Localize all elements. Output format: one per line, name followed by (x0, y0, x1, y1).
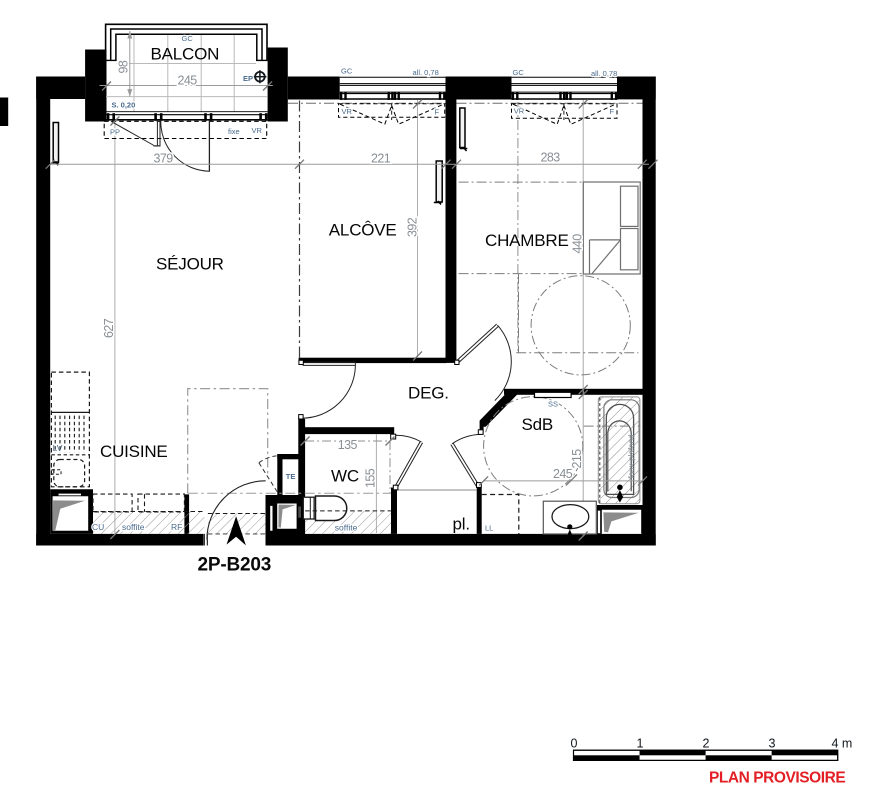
svg-text:soffite: soffite (335, 523, 358, 533)
svg-text:VR: VR (342, 107, 353, 116)
svg-text:1: 1 (637, 737, 644, 751)
svg-text:PLAN PROVISOIRE: PLAN PROVISOIRE (709, 769, 845, 786)
svg-text:SdB: SdB (522, 415, 554, 434)
svg-text:GC: GC (341, 67, 353, 76)
svg-text:SS: SS (548, 400, 558, 409)
svg-text:379: 379 (154, 152, 174, 166)
svg-text:TE: TE (286, 472, 296, 481)
svg-text:WC: WC (331, 467, 359, 486)
svg-text:all. 0,78: all. 0,78 (413, 68, 439, 77)
svg-text:221: 221 (371, 152, 391, 166)
svg-text:VR: VR (252, 126, 263, 135)
svg-text:155: 155 (364, 468, 378, 488)
svg-text:440: 440 (571, 234, 585, 254)
svg-text:2P-B203: 2P-B203 (198, 555, 272, 576)
svg-text:EP: EP (243, 74, 253, 83)
svg-text:215: 215 (570, 449, 584, 469)
svg-text:283: 283 (541, 151, 561, 165)
svg-text:392: 392 (406, 217, 420, 237)
svg-text:soffite: soffite (122, 522, 145, 532)
svg-text:4 m: 4 m (832, 737, 853, 751)
svg-text:CHAMBRE: CHAMBRE (485, 231, 569, 250)
svg-text:PP: PP (110, 128, 120, 137)
svg-text:RF: RF (171, 522, 182, 532)
svg-text:LV: LV (53, 443, 63, 453)
svg-text:SÉJOUR: SÉJOUR (156, 255, 224, 274)
svg-text:F: F (610, 107, 615, 116)
svg-text:DEG.: DEG. (408, 384, 449, 403)
svg-text:F: F (435, 107, 440, 116)
svg-text:pl.: pl. (453, 515, 470, 534)
svg-text:0: 0 (571, 737, 578, 751)
svg-text:BALCON: BALCON (151, 45, 220, 64)
svg-text:135: 135 (338, 438, 358, 452)
svg-text:3: 3 (769, 737, 776, 751)
svg-text:fixe: fixe (228, 127, 240, 136)
svg-text:LL: LL (485, 524, 493, 533)
svg-text:627: 627 (102, 318, 116, 338)
svg-text:VR: VR (514, 107, 525, 116)
svg-text:245: 245 (178, 74, 198, 88)
svg-text:2: 2 (703, 737, 710, 751)
svg-text:ALCÔVE: ALCÔVE (329, 221, 397, 240)
svg-text:all. 0,78: all. 0,78 (591, 69, 617, 78)
svg-text:faux-plafond: faux-plafond (627, 434, 636, 478)
svg-text:CU: CU (92, 522, 104, 532)
svg-text:S. 0,20: S. 0,20 (112, 101, 136, 110)
svg-text:CUISINE: CUISINE (100, 442, 168, 461)
svg-text:GC: GC (513, 68, 525, 77)
svg-text:98: 98 (117, 60, 131, 73)
svg-text:GC: GC (182, 34, 194, 43)
